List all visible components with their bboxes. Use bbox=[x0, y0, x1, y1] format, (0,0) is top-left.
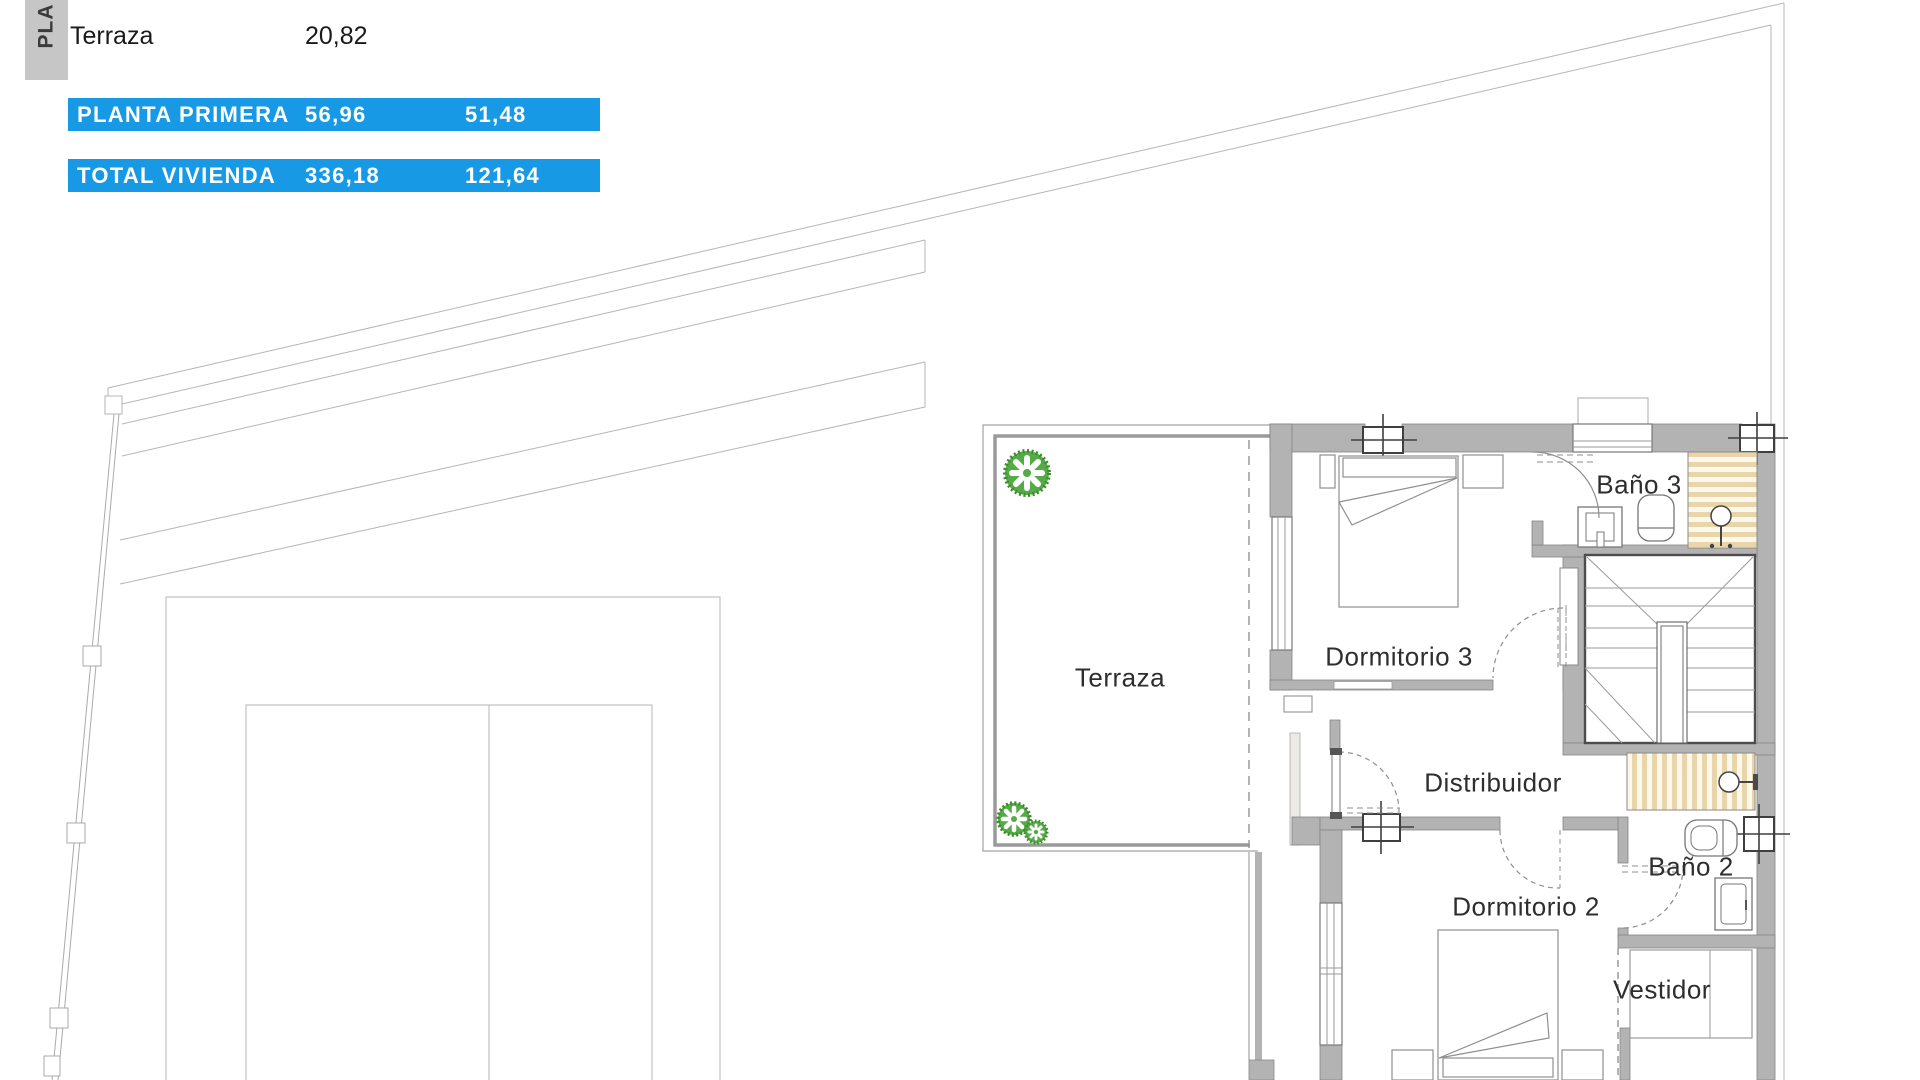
sink-bano3 bbox=[1578, 507, 1622, 547]
staircase bbox=[1585, 555, 1755, 743]
shelf bbox=[1284, 696, 1312, 712]
room-label-terraza: Terraza bbox=[1075, 663, 1165, 694]
door-dormitorio3 bbox=[1493, 608, 1566, 678]
shower-bano3 bbox=[1688, 452, 1757, 548]
door-distribuidor bbox=[1330, 748, 1400, 819]
area-bar-total-vivienda: TOTAL VIVIENDA 336,18 121,64 bbox=[68, 159, 600, 192]
area-row-terraza: Terraza 20,82 bbox=[70, 22, 602, 54]
tree-icon bbox=[1005, 451, 1049, 495]
area-bar-label: PLANTA PRIMERA bbox=[77, 98, 290, 131]
wardrobe-vestidor bbox=[1618, 948, 1752, 1080]
room-label-distribuidor: Distribuidor bbox=[1424, 768, 1562, 799]
room-label-dormitorio-2: Dormitorio 2 bbox=[1452, 892, 1600, 923]
sheet-tab-label: PLA bbox=[35, 4, 59, 49]
room-label-bano-2: Baño 2 bbox=[1648, 852, 1733, 883]
area-row-value: 20,82 bbox=[305, 22, 368, 51]
area-bar-value-2: 121,64 bbox=[465, 159, 540, 192]
area-row-label: Terraza bbox=[70, 22, 153, 51]
room-label-dormitorio-3: Dormitorio 3 bbox=[1325, 642, 1473, 673]
tree-icon bbox=[1025, 821, 1047, 843]
room-label-vestidor: Vestidor bbox=[1613, 975, 1711, 1006]
low-wall-segment bbox=[1334, 682, 1392, 690]
window-dormitorio2 bbox=[1320, 903, 1342, 1045]
plot-fence bbox=[44, 414, 119, 1080]
area-bar-value-1: 336,18 bbox=[305, 159, 380, 192]
bed-dormitorio2 bbox=[1392, 930, 1603, 1080]
bed-dormitorio3 bbox=[1320, 455, 1503, 607]
window-dormitorio3 bbox=[1272, 517, 1292, 650]
sink-bano2 bbox=[1715, 878, 1752, 930]
sheet-tab: PLA bbox=[25, 0, 68, 80]
area-bar-value-2: 51,48 bbox=[465, 98, 527, 131]
area-bar-label: TOTAL VIVIENDA bbox=[77, 159, 276, 192]
area-bar-value-1: 56,96 bbox=[305, 98, 367, 131]
room-label-bano-3: Baño 3 bbox=[1596, 470, 1681, 501]
door-dormitorio2 bbox=[1500, 830, 1560, 888]
floor-plan-sheet: PLA Terraza 20,82 PLANTA PRIMERA 56,96 5… bbox=[0, 0, 1920, 1080]
area-bar-planta-primera: PLANTA PRIMERA 56,96 51,48 bbox=[68, 98, 600, 131]
toilet-bano3 bbox=[1638, 495, 1674, 541]
vent-icon bbox=[1351, 801, 1414, 854]
wall-niche bbox=[1560, 568, 1578, 665]
window-top bbox=[1573, 398, 1652, 452]
garden-outline bbox=[166, 597, 720, 1080]
terraza-border bbox=[983, 425, 1300, 1080]
